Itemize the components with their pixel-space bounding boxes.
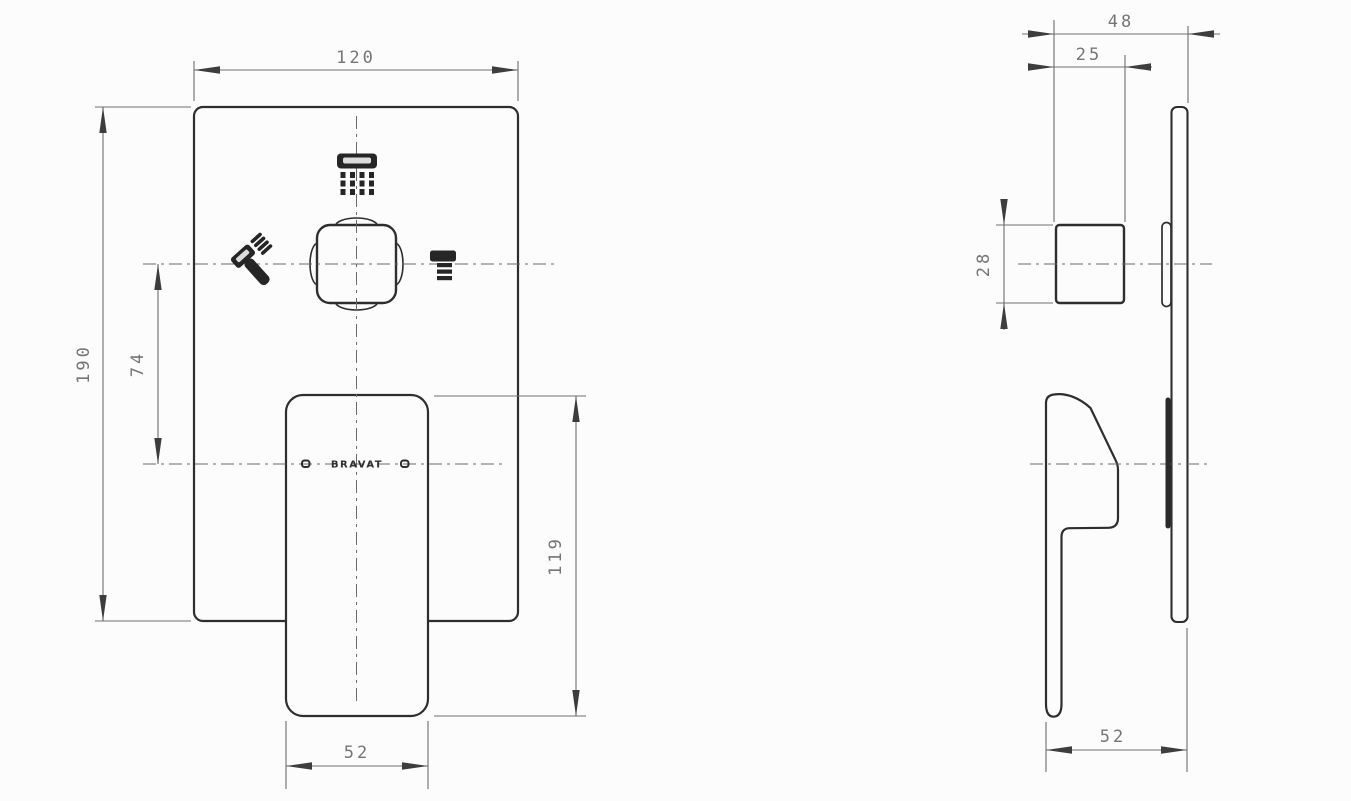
dim-handle-width: 52 [286,721,428,789]
dim-knob-size: 28 [974,199,1053,330]
handle-side-profile [1046,394,1118,717]
dim-knob-depth: 25 [1028,45,1152,222]
dim-label-total-depth: 48 [1108,12,1134,32]
technical-drawing: BRAVAT 120 190 74 [0,0,1351,801]
dim-total-depth: 48 [1022,12,1220,222]
dim-label-center-spacing: 74 [128,351,148,377]
dim-label-handle-depth: 52 [1100,727,1126,747]
hand-shower-icon [230,232,289,291]
dim-plate-width: 120 [194,48,518,101]
dim-label-handle-width: 52 [344,743,370,763]
spout-icon [430,251,456,281]
technical-drawing-page: BRAVAT 120 190 74 [0,0,1351,801]
front-view: BRAVAT 120 190 74 [74,48,586,789]
dim-label-knob-depth: 25 [1076,45,1102,65]
dim-handle-depth: 52 [1046,628,1187,772]
dim-handle-length: 119 [434,396,586,716]
dim-label-handle-length: 119 [546,536,566,576]
dim-label-plate-width: 120 [336,48,376,68]
dim-label-knob-size: 28 [974,251,994,277]
dim-center-spacing: 74 [128,264,162,464]
brand-logo-text: BRAVAT [331,460,383,471]
cover-plate-side [1172,107,1188,622]
side-view: 48 25 28 52 [974,12,1220,772]
dim-label-plate-height: 190 [74,344,94,384]
